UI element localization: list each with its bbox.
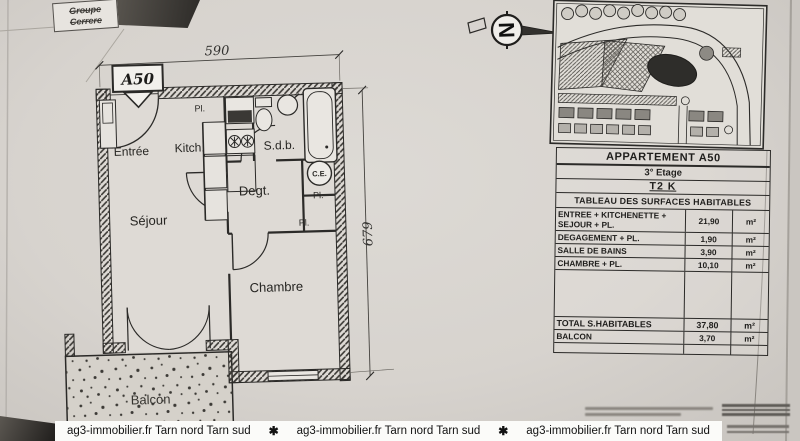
room-label-entree: Entrée (114, 144, 150, 159)
row-unit: m² (732, 246, 769, 259)
watermark-band: ag3-immobilier.fr Tarn nord Tarn sud ✱ a… (55, 421, 722, 441)
room-label-sejour: Séjour (130, 212, 169, 228)
dim-590-label: 590 (204, 44, 229, 60)
closet-label-1: Pl. (194, 103, 205, 113)
north-letter: N (494, 22, 520, 39)
watermark-separator-icon: ✱ (269, 424, 279, 438)
dim-679-label: 679 (361, 221, 377, 246)
site-plan (550, 0, 767, 149)
bathtub (303, 88, 337, 163)
row-label: ENTREE + KITCHENETTE + SEJOUR + PL. (556, 208, 685, 232)
row-label: DEGAGEMENT + PL. (556, 231, 685, 245)
photo-shadow (112, 0, 200, 28)
water-heater-label: C.E. (312, 169, 327, 178)
row-label: SALLE DE BAINS (555, 244, 684, 258)
illegible-band-tail (727, 425, 789, 436)
watermark-text: ag3-immobilier.fr Tarn nord Tarn sud (67, 425, 251, 437)
scanned-floorplan-page: A50 590 679 Entrée Kitch. S.d.b. Degt. S… (0, 0, 800, 441)
total-value: 37,80 (683, 319, 731, 332)
row-label: CHAMBRE + PL. (555, 257, 684, 271)
logo-line2: Cerrere (70, 14, 103, 27)
balcony-texture (65, 352, 233, 431)
wall-step (228, 340, 239, 383)
entree-closet (99, 100, 116, 148)
kitchen-cupboards (203, 122, 228, 221)
table-row-empty (555, 270, 769, 320)
wall-bottom-sejour-right (206, 340, 228, 351)
site-parking-right (723, 48, 741, 57)
north-arrow-tail (468, 18, 486, 33)
total-unit: m² (731, 319, 768, 332)
type-label: T2 K (649, 180, 676, 192)
table-row: ENTREE + KITCHENETTE + SEJOUR + PL. 21,9… (556, 208, 769, 234)
total-label: TOTAL S.HABITABLES (554, 317, 683, 331)
wc-tank (255, 98, 271, 107)
room-label-sdb: S.d.b. (263, 138, 295, 153)
apartment-plan: A50 590 679 Entrée Kitch. S.d.b. Degt. S… (57, 39, 396, 430)
illegible-fine-print (585, 407, 713, 419)
balcon-value: 3,70 (683, 332, 731, 345)
row-value: 3,90 (684, 246, 732, 259)
agency-logo: Groupe Cerrere (52, 0, 119, 32)
closet-label-2: Pl. (313, 190, 324, 200)
wc-bowl (256, 109, 273, 131)
unit-tag-label: A50 (119, 70, 155, 89)
info-panel: APPARTEMENT A50 3° Etage T2 K TABLEAU DE… (553, 147, 771, 356)
room-label-balcon: Balcon (131, 391, 171, 407)
north-arrow: N (468, 11, 560, 49)
room-label-kitchen: Kitch. (175, 140, 205, 155)
illegible-stamp (722, 404, 790, 423)
row-value: 1,90 (684, 233, 732, 246)
paper-edge-left (6, 0, 8, 441)
row-unit: m² (732, 210, 769, 233)
row-unit: m² (731, 259, 768, 272)
closet-label-3: Pl. (299, 218, 310, 228)
wall-bottom-sejour-left (103, 343, 125, 354)
watermark-text: ag3-immobilier.fr Tarn nord Tarn sud (297, 425, 481, 437)
watermark-separator-icon: ✱ (498, 424, 508, 438)
row-value: 21,90 (685, 210, 733, 233)
row-value: 10,10 (684, 259, 732, 272)
kitchen-hob (228, 110, 252, 123)
balcon-label: BALCON (554, 330, 683, 344)
room-label-chambre: Chambre (249, 279, 303, 295)
balcon-unit: m² (730, 332, 767, 345)
room-label-degt: Degt. (239, 183, 270, 199)
site-tree-mid (699, 46, 713, 60)
watermark-text: ag3-immobilier.fr Tarn nord Tarn sud (526, 425, 710, 437)
table-row-empty (554, 343, 767, 355)
row-unit: m² (732, 233, 769, 246)
balcony-wall-stub (65, 334, 75, 356)
